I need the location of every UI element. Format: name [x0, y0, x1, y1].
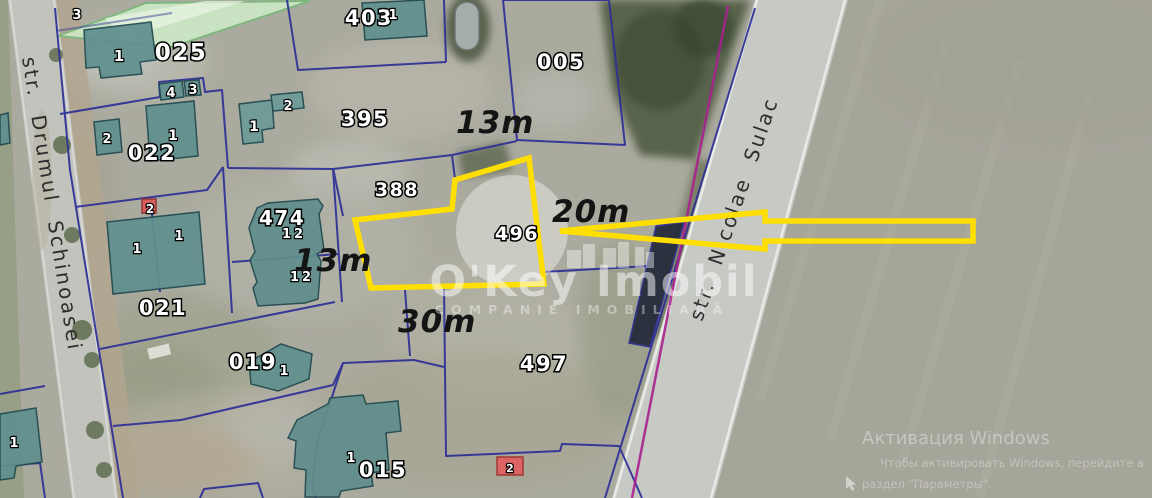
building: [0, 113, 10, 145]
parcel-label-005: 005: [537, 50, 585, 74]
building-number: 2: [102, 132, 111, 147]
windows-watermark-line1: Активация Windows: [862, 428, 1050, 449]
dimension-label: 13m: [456, 105, 534, 141]
parcel-label-025: 025: [155, 40, 208, 66]
building-number: 1: [388, 8, 397, 23]
building-number: 12: [282, 227, 306, 242]
parcel-label-015: 015: [359, 458, 407, 482]
building-number: 1: [9, 436, 18, 451]
building-number: 2: [146, 202, 154, 216]
building-number: 1: [346, 451, 355, 466]
parcel-label-395: 395: [341, 107, 389, 131]
windows-watermark-line2: Чтобы активировать Windows, перейдите в: [880, 456, 1144, 470]
brand-watermark-subtitle: COMPANIE IMOBILIARĂ: [435, 302, 729, 317]
parcel-label-388: 388: [375, 179, 419, 201]
building-number: 1: [174, 229, 183, 244]
building-number: 2: [506, 462, 514, 475]
building-number: 3: [188, 83, 197, 98]
building-number: 4: [166, 86, 175, 101]
parcel-label-021: 021: [139, 296, 187, 320]
map-canvas[interactable]: str. Drumul Schinoasei str. Nicolae Sula…: [0, 0, 1152, 498]
building-number: 1: [132, 242, 141, 257]
building-number: 3: [72, 8, 81, 23]
building-number: 1: [279, 364, 288, 379]
parcel-label-019: 019: [229, 350, 277, 374]
brand-watermark-title: O'Key Imobil: [429, 257, 758, 307]
building-number: 1: [114, 47, 124, 65]
parcel-label-403: 403: [345, 6, 393, 30]
pool: [455, 2, 479, 50]
building-number: 1: [249, 119, 259, 135]
parcel-label-496: 496: [495, 223, 539, 245]
building-number: 1: [168, 128, 178, 144]
dimension-label: 13m: [294, 243, 372, 279]
windows-watermark-line3: раздел "Параметры".: [862, 477, 992, 491]
parcel-label-022: 022: [128, 141, 176, 165]
building-number: 2: [283, 99, 292, 114]
dimension-label: 20m: [552, 194, 630, 230]
parcel-label-497: 497: [520, 352, 568, 376]
building: [107, 212, 205, 294]
